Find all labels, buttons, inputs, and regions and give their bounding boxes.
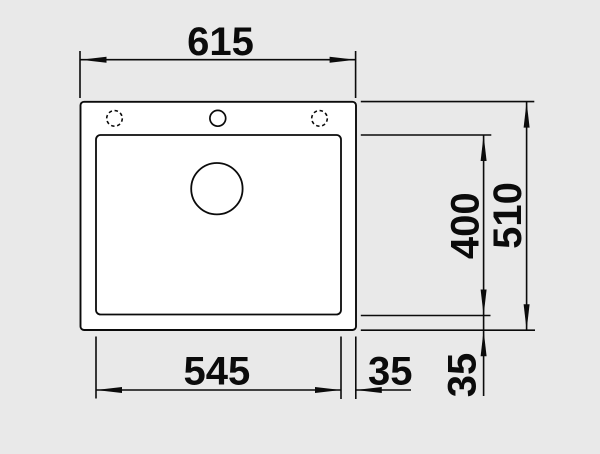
svg-text:545: 545 xyxy=(184,349,251,393)
svg-text:35: 35 xyxy=(368,350,413,394)
svg-text:510: 510 xyxy=(486,182,530,249)
svg-text:35: 35 xyxy=(441,353,485,398)
svg-text:615: 615 xyxy=(187,20,254,64)
svg-text:400: 400 xyxy=(444,192,488,259)
